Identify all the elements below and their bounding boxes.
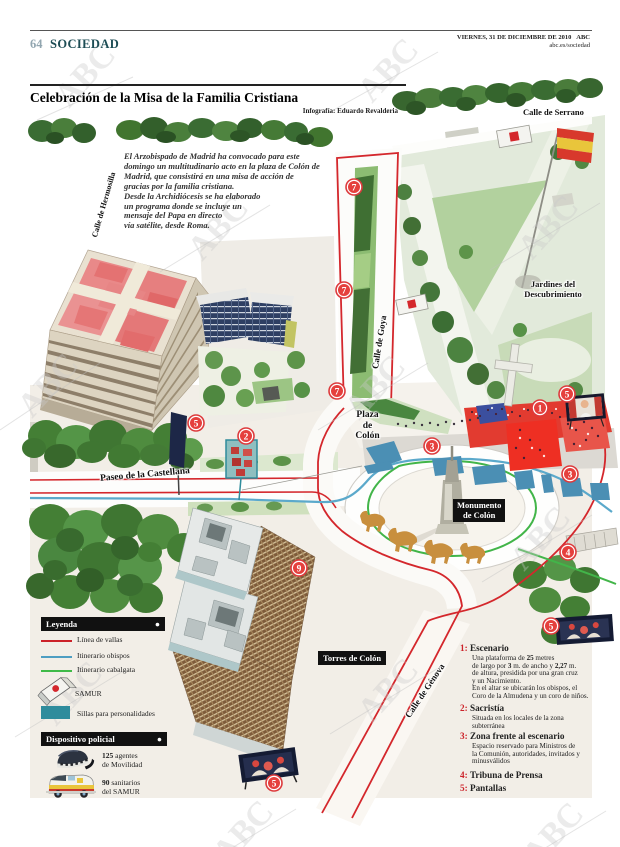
svg-text:5: 5 <box>565 390 570 400</box>
svg-text:5: 5 <box>272 779 277 789</box>
svg-text:9: 9 <box>297 564 302 574</box>
svg-text:4: 4 <box>566 548 571 558</box>
svg-text:5: 5 <box>194 419 199 429</box>
svg-text:7: 7 <box>335 387 340 397</box>
svg-text:7: 7 <box>342 286 347 296</box>
svg-text:3: 3 <box>568 470 573 480</box>
svg-text:5: 5 <box>549 622 554 632</box>
svg-text:ABC: ABC <box>206 793 282 847</box>
svg-text:2: 2 <box>244 432 249 442</box>
svg-text:ABC: ABC <box>516 795 592 847</box>
svg-text:1: 1 <box>538 404 543 414</box>
svg-text:7: 7 <box>352 183 357 193</box>
svg-text:3: 3 <box>430 442 435 452</box>
